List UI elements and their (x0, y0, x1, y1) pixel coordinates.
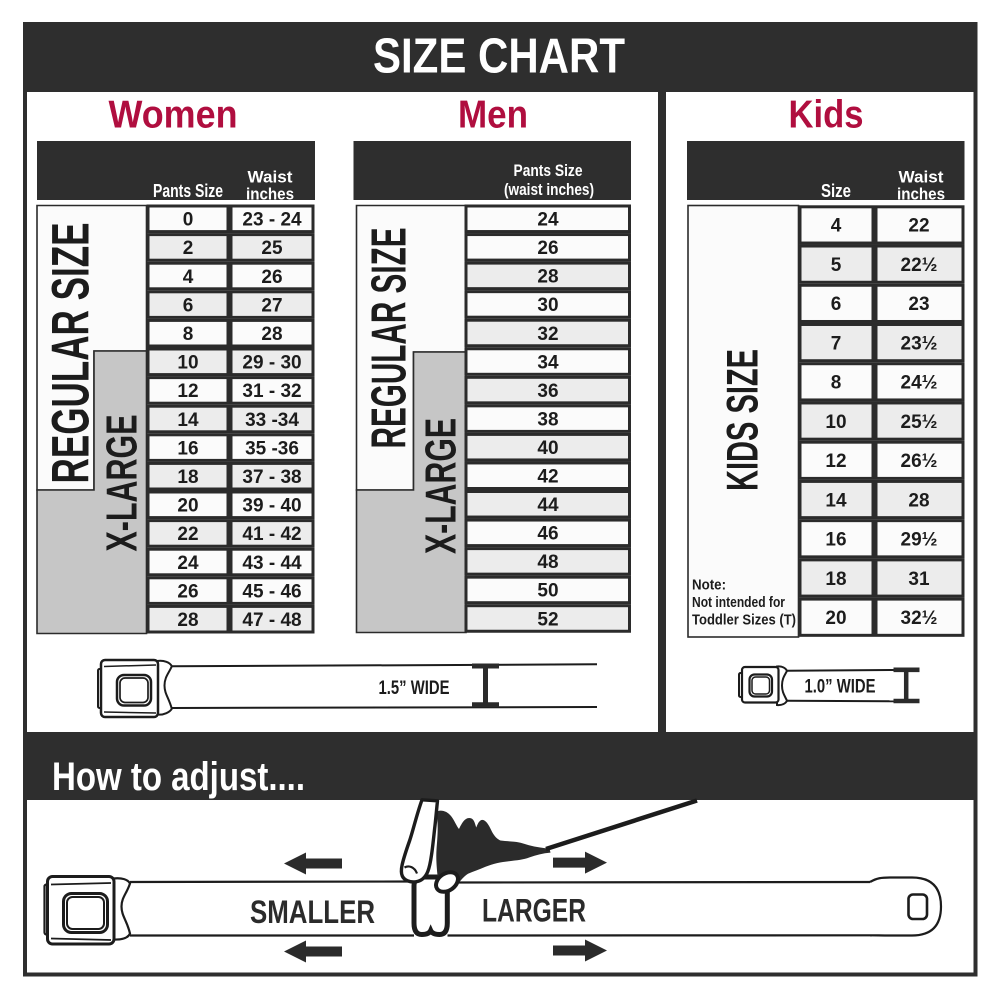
svg-text:Pants Size: Pants Size (153, 180, 223, 201)
svg-text:2: 2 (183, 238, 194, 259)
svg-text:35 -36: 35 -36 (245, 438, 299, 459)
svg-text:16: 16 (177, 438, 198, 459)
svg-text:29 - 30: 29 - 30 (242, 353, 301, 374)
svg-text:45 - 46: 45 - 46 (242, 581, 301, 602)
svg-text:29½: 29½ (901, 530, 938, 551)
svg-text:4: 4 (831, 216, 842, 237)
svg-text:1.0” WIDE: 1.0” WIDE (805, 677, 876, 698)
svg-text:52: 52 (537, 609, 558, 630)
svg-text:48: 48 (537, 552, 558, 573)
svg-text:39 - 40: 39 - 40 (242, 496, 301, 517)
svg-text:LARGER: LARGER (482, 893, 586, 929)
svg-text:REGULAR SIZE: REGULAR SIZE (363, 228, 417, 449)
svg-text:Women: Women (109, 94, 238, 137)
svg-text:25½: 25½ (901, 412, 938, 433)
svg-text:28: 28 (537, 267, 558, 288)
svg-text:23½: 23½ (901, 333, 938, 354)
svg-text:14: 14 (825, 490, 847, 511)
svg-text:47 - 48: 47 - 48 (242, 610, 301, 631)
svg-text:8: 8 (183, 324, 194, 345)
svg-text:6: 6 (831, 294, 842, 315)
svg-text:SIZE CHART: SIZE CHART (373, 29, 625, 84)
svg-text:41 - 42: 41 - 42 (242, 524, 301, 545)
svg-text:4: 4 (183, 267, 194, 288)
svg-text:Not intended for: Not intended for (692, 594, 785, 611)
svg-text:22: 22 (177, 524, 198, 545)
svg-text:36: 36 (537, 381, 558, 402)
svg-text:X-LARGE: X-LARGE (418, 418, 466, 554)
svg-text:10: 10 (825, 412, 846, 433)
svg-text:Toddler Sizes (T): Toddler Sizes (T) (692, 612, 796, 629)
svg-text:31: 31 (908, 569, 930, 590)
svg-text:Size: Size (821, 180, 851, 201)
svg-text:inches: inches (897, 185, 945, 204)
svg-text:Kids: Kids (789, 94, 864, 137)
svg-text:22: 22 (908, 216, 929, 237)
svg-text:34: 34 (537, 352, 559, 373)
svg-text:1.5” WIDE: 1.5” WIDE (379, 678, 450, 699)
svg-text:KIDS SIZE: KIDS SIZE (719, 349, 768, 491)
svg-text:40: 40 (537, 438, 558, 459)
svg-text:20: 20 (177, 496, 198, 517)
svg-text:26: 26 (177, 581, 198, 602)
svg-text:26: 26 (537, 238, 558, 259)
svg-text:12: 12 (825, 451, 846, 472)
svg-text:23: 23 (908, 294, 929, 315)
svg-text:31 - 32: 31 - 32 (242, 381, 301, 402)
svg-text:32: 32 (537, 324, 558, 345)
svg-text:inches: inches (246, 185, 294, 204)
svg-text:24: 24 (537, 210, 559, 231)
svg-text:32½: 32½ (901, 608, 938, 629)
svg-text:50: 50 (537, 581, 558, 602)
svg-text:10: 10 (177, 353, 198, 374)
svg-text:Men: Men (458, 94, 528, 137)
svg-text:43 - 44: 43 - 44 (242, 553, 302, 574)
svg-text:14: 14 (177, 410, 199, 431)
svg-text:6: 6 (183, 295, 194, 316)
svg-text:How to adjust....: How to adjust.... (52, 755, 305, 799)
svg-text:5: 5 (831, 255, 842, 276)
svg-text:27: 27 (261, 295, 282, 316)
svg-text:18: 18 (825, 569, 846, 590)
svg-text:18: 18 (177, 467, 198, 488)
svg-text:22½: 22½ (901, 255, 938, 276)
svg-text:26: 26 (261, 267, 282, 288)
svg-text:REGULAR SIZE: REGULAR SIZE (42, 223, 101, 484)
svg-text:20: 20 (825, 608, 846, 629)
svg-text:38: 38 (537, 409, 558, 430)
svg-text:42: 42 (537, 467, 558, 488)
svg-text:12: 12 (177, 381, 198, 402)
svg-text:SMALLER: SMALLER (250, 894, 375, 930)
svg-text:37 - 38: 37 - 38 (242, 467, 301, 488)
svg-text:(waist inches): (waist inches) (504, 180, 594, 199)
svg-text:28: 28 (261, 324, 282, 345)
svg-text:44: 44 (537, 495, 559, 516)
svg-text:46: 46 (537, 524, 558, 545)
svg-text:24½: 24½ (901, 373, 938, 394)
svg-text:X-LARGE: X-LARGE (99, 415, 147, 552)
svg-text:24: 24 (177, 553, 199, 574)
svg-text:8: 8 (831, 373, 842, 394)
svg-text:28: 28 (908, 490, 929, 511)
svg-text:25: 25 (261, 238, 283, 259)
svg-text:16: 16 (825, 530, 846, 551)
svg-text:0: 0 (183, 210, 194, 231)
svg-text:26½: 26½ (901, 451, 938, 472)
svg-text:7: 7 (831, 333, 842, 354)
svg-text:30: 30 (537, 295, 558, 316)
svg-text:28: 28 (177, 610, 198, 631)
svg-text:23 - 24: 23 - 24 (242, 210, 302, 231)
svg-text:Note:: Note: (692, 577, 726, 594)
svg-text:33 -34: 33 -34 (245, 410, 299, 431)
svg-text:Pants Size: Pants Size (514, 161, 583, 180)
